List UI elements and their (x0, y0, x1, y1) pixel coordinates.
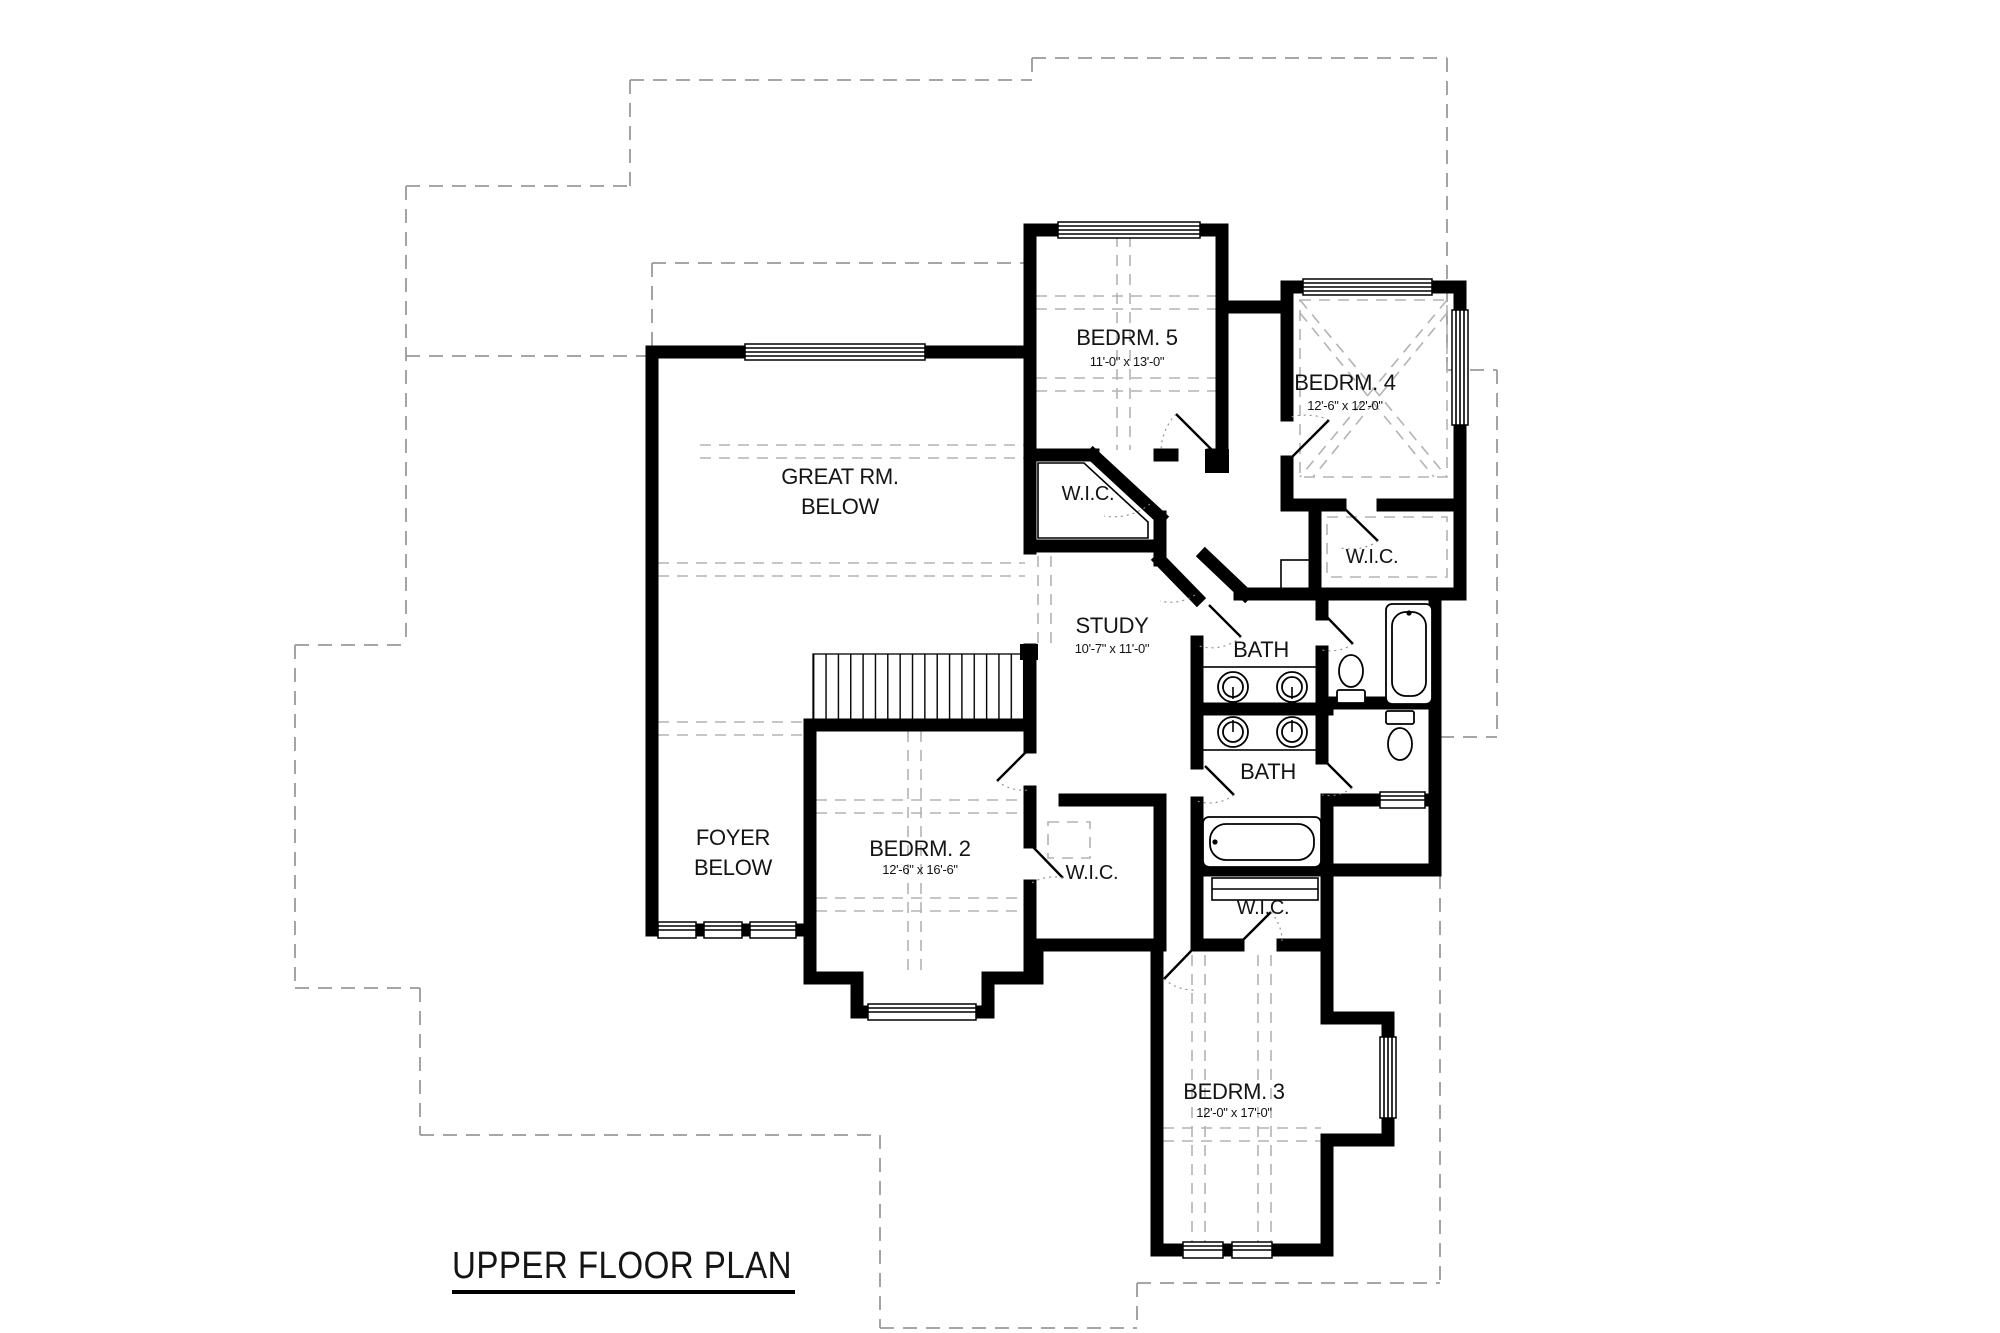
bedroom4-door (1289, 420, 1329, 460)
drawing-title: UPPER FLOOR PLAN (452, 1245, 795, 1292)
bedroom5-door (1176, 414, 1215, 453)
toilet-upper (1337, 655, 1365, 703)
bedroom3-bay-window (1380, 1037, 1396, 1118)
bedroom3-door (1164, 948, 1194, 979)
bathtub-upper (1386, 604, 1432, 704)
staircase (813, 654, 1031, 720)
foyer-label: FOYER (696, 825, 770, 850)
bedroom2-door (997, 750, 1028, 781)
bath-nook-window (1380, 792, 1425, 808)
bedroom4-right-window (1452, 310, 1468, 425)
great-room-label-2: BELOW (801, 494, 879, 519)
bedroom5-label: BEDRM. 5 (1076, 325, 1178, 350)
bedroom3-dims: 12'-0" x 17'-0" (1196, 1105, 1272, 1120)
wic-bedroom4-label: W.I.C. (1346, 546, 1399, 568)
bath-upper-label: BATH (1233, 637, 1289, 662)
study-label: STUDY (1075, 613, 1149, 638)
bedroom2-label: BEDRM. 2 (869, 836, 971, 861)
foyer-label-2: BELOW (694, 855, 772, 880)
bedroom5-dims: 11'-0" x 13'-0" (1090, 354, 1165, 369)
wic-bedroom2-door (1033, 847, 1063, 878)
bath-upper-inner-door (1325, 615, 1353, 644)
linen-closet (1281, 560, 1313, 592)
bath-lower-label: BATH (1240, 759, 1296, 784)
toilet-lower (1386, 711, 1414, 760)
foyer-windows (658, 922, 796, 938)
bath-lower-inner-door (1324, 760, 1352, 788)
great-room-window (745, 344, 925, 360)
bedroom2-dims: 12'-6" x 16'-6" (882, 862, 958, 877)
great-room-label: GREAT RM. (781, 464, 899, 489)
bedroom4-dims: 12'-6" x 12'-0" (1307, 398, 1383, 413)
bathtub-lower (1203, 817, 1321, 867)
sink (1277, 717, 1307, 747)
bath-lower-door (1205, 766, 1234, 795)
study-door (1163, 563, 1195, 595)
bedroom3-label: BEDRM. 3 (1183, 1079, 1285, 1104)
upper-floor-plan-drawing: GREAT RM. BELOW FOYER BELOW BEDRM. 5 11'… (0, 0, 2000, 1333)
floor-plan-page: GREAT RM. BELOW FOYER BELOW BEDRM. 5 11'… (0, 0, 2000, 1333)
page-title: UPPER FLOOR PLAN (452, 1245, 792, 1287)
bedroom4-label: BEDRM. 4 (1294, 370, 1396, 395)
bath-upper-door (1209, 605, 1241, 637)
study-dims: 10'-7" x 11'-0" (1075, 641, 1150, 656)
bedroom4-top-window (1303, 279, 1432, 295)
sink (1218, 717, 1248, 747)
wic-bedroom5-label: W.I.C. (1062, 483, 1115, 505)
sink (1218, 672, 1248, 702)
wic-bedroom3-label: W.I.C. (1237, 897, 1290, 919)
wic-bedroom4-door (1343, 507, 1378, 541)
sink (1277, 672, 1307, 702)
bedroom5-window (1058, 222, 1200, 238)
wic-bedroom2-label: W.I.C. (1066, 862, 1119, 884)
bedroom2-bay-window (868, 1004, 976, 1020)
